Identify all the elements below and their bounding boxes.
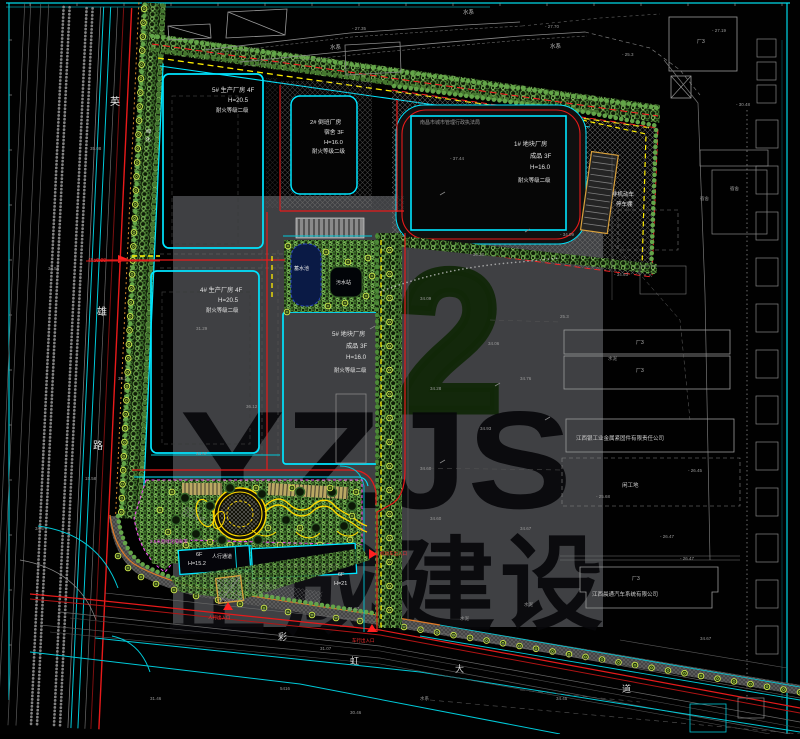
svg-text:31.07: 31.07	[348, 606, 360, 611]
svg-text:- 27.19: - 27.19	[712, 28, 727, 33]
svg-text:彩: 彩	[278, 632, 287, 642]
svg-text:- 26.45: - 26.45	[688, 468, 703, 473]
svg-text:耐火等级二级: 耐火等级二级	[518, 176, 551, 184]
svg-text:水系: 水系	[550, 42, 562, 50]
svg-text:34.5: 34.5	[196, 516, 205, 521]
svg-text:1# 地块厂房: 1# 地块厂房	[514, 140, 547, 148]
svg-text:H=16.0: H=16.0	[346, 354, 367, 361]
svg-text:34.28: 34.28	[430, 386, 442, 391]
svg-text:34.45: 34.45	[556, 696, 568, 701]
svg-text:2.5米宽绿化隔离带: 2.5米宽绿化隔离带	[150, 538, 188, 545]
svg-text:绿: 绿	[146, 128, 151, 135]
svg-text:H=15.2: H=15.2	[188, 561, 206, 567]
svg-text:耐火等级二级: 耐火等级二级	[334, 366, 367, 374]
svg-text:耐火等级二级: 耐火等级二级	[206, 306, 239, 314]
svg-text:- 27.35: - 27.35	[352, 26, 367, 31]
svg-text:厂3: 厂3	[636, 368, 644, 374]
svg-text:南昌市城市管理行政执法局: 南昌市城市管理行政执法局	[420, 119, 480, 126]
svg-text:H=16.0: H=16.0	[530, 164, 551, 171]
svg-text:H=20.5: H=20.5	[218, 297, 239, 304]
svg-text:34.67: 34.67	[520, 526, 532, 531]
svg-text:耐火等级二级: 耐火等级二级	[216, 106, 249, 114]
svg-text:路: 路	[93, 439, 103, 452]
svg-text:厂3: 厂3	[636, 340, 644, 346]
svg-text:35.08: 35.08	[90, 146, 102, 151]
svg-text:水泥: 水泥	[608, 355, 617, 362]
svg-text:宿舍: 宿舍	[730, 185, 739, 192]
svg-text:水系: 水系	[330, 43, 342, 51]
svg-text:31.46: 31.46	[150, 696, 162, 701]
svg-text:34.09: 34.09	[420, 296, 432, 301]
svg-text:耐火等级二级: 耐火等级二级	[312, 147, 346, 155]
svg-text:34.76: 34.76	[520, 376, 532, 381]
svg-text:31.07: 31.07	[320, 646, 332, 651]
svg-text:31.29: 31.29	[196, 326, 208, 331]
svg-text:人行出入口: 人行出入口	[208, 614, 231, 621]
svg-text:设: 设	[500, 527, 603, 642]
svg-text:大: 大	[455, 663, 464, 674]
svg-text:15.58: 15.58	[85, 476, 97, 481]
svg-text:道: 道	[622, 683, 631, 694]
svg-text:江西银工业金属紧固件有限责任公司: 江西银工业金属紧固件有限责任公司	[576, 434, 664, 442]
svg-text:英: 英	[110, 95, 120, 108]
svg-text:人行通道: 人行通道	[212, 553, 232, 560]
svg-text:雄: 雄	[97, 305, 107, 318]
svg-text:- 25.68: - 25.68	[596, 494, 611, 499]
svg-text:6F: 6F	[338, 572, 345, 578]
svg-text:5416: 5416	[280, 686, 291, 691]
svg-text:H=21: H=21	[334, 581, 347, 587]
svg-text:- 27.70: - 27.70	[545, 24, 560, 29]
svg-text:34.57: 34.57	[196, 451, 208, 456]
svg-text:成品 3F: 成品 3F	[530, 152, 552, 160]
svg-text:- 37.44: - 37.44	[450, 156, 465, 161]
svg-text:35.1: 35.1	[118, 376, 127, 381]
svg-text:江西晨通汽车系统有限公司: 江西晨通汽车系统有限公司	[592, 590, 658, 598]
svg-text:非机动车: 非机动车	[612, 190, 635, 198]
svg-text:- 34.93: - 34.93	[614, 272, 629, 277]
svg-text:- 26.47: - 26.47	[660, 534, 675, 539]
svg-text:水泥: 水泥	[524, 601, 533, 608]
svg-text:4# 生产厂房 4F: 4# 生产厂房 4F	[200, 286, 243, 294]
svg-text:闲工地: 闲工地	[622, 481, 639, 489]
svg-text:6F: 6F	[196, 552, 203, 558]
svg-text:34.67: 34.67	[700, 636, 712, 641]
svg-text:34.56: 34.56	[48, 266, 60, 271]
svg-text:30.46: 30.46	[350, 710, 362, 715]
svg-text:厂3: 厂3	[632, 576, 640, 582]
svg-text:34.06: 34.06	[488, 341, 500, 346]
svg-text:停车棚: 停车棚	[616, 200, 633, 208]
svg-text:25.3: 25.3	[560, 314, 569, 319]
svg-text:H=16.0: H=16.0	[324, 140, 343, 146]
svg-text:- 26.47: - 26.47	[680, 556, 695, 561]
svg-text:车行出入口: 车行出入口	[352, 637, 375, 644]
svg-text:36.12: 36.12	[246, 404, 258, 409]
svg-text:宿舍 3F: 宿舍 3F	[324, 128, 344, 136]
svg-text:- 34.09: - 34.09	[560, 232, 575, 237]
svg-text:34.60: 34.60	[420, 466, 432, 471]
svg-text:水泥: 水泥	[460, 615, 469, 622]
svg-text:2# 倒班厂房: 2# 倒班厂房	[310, 118, 341, 126]
svg-text:- 25.3: - 25.3	[622, 52, 634, 57]
svg-text:污水站: 污水站	[336, 279, 351, 286]
svg-text:- 34.28: - 34.28	[470, 252, 485, 257]
svg-text:34.5: 34.5	[35, 526, 44, 531]
svg-text:- 30.48: - 30.48	[736, 102, 751, 107]
svg-text:化: 化	[146, 136, 151, 143]
svg-text:蓄水池: 蓄水池	[294, 265, 309, 272]
svg-text:成品 3F: 成品 3F	[346, 342, 368, 350]
svg-text:虹: 虹	[350, 656, 359, 666]
svg-text:34.60: 34.60	[430, 516, 442, 521]
svg-text:宿舍: 宿舍	[700, 195, 709, 202]
svg-text:5# 生产厂房 4F: 5# 生产厂房 4F	[212, 86, 255, 94]
svg-text:厂3: 厂3	[697, 39, 705, 45]
svg-text:水系: 水系	[463, 8, 475, 16]
svg-text:水系: 水系	[420, 695, 429, 701]
svg-text:机动车出入口: 机动车出入口	[380, 550, 407, 557]
svg-text:34.93: 34.93	[480, 426, 492, 431]
svg-text:H=20.5: H=20.5	[228, 97, 249, 104]
svg-text:5# 地块厂房: 5# 地块厂房	[332, 330, 365, 338]
